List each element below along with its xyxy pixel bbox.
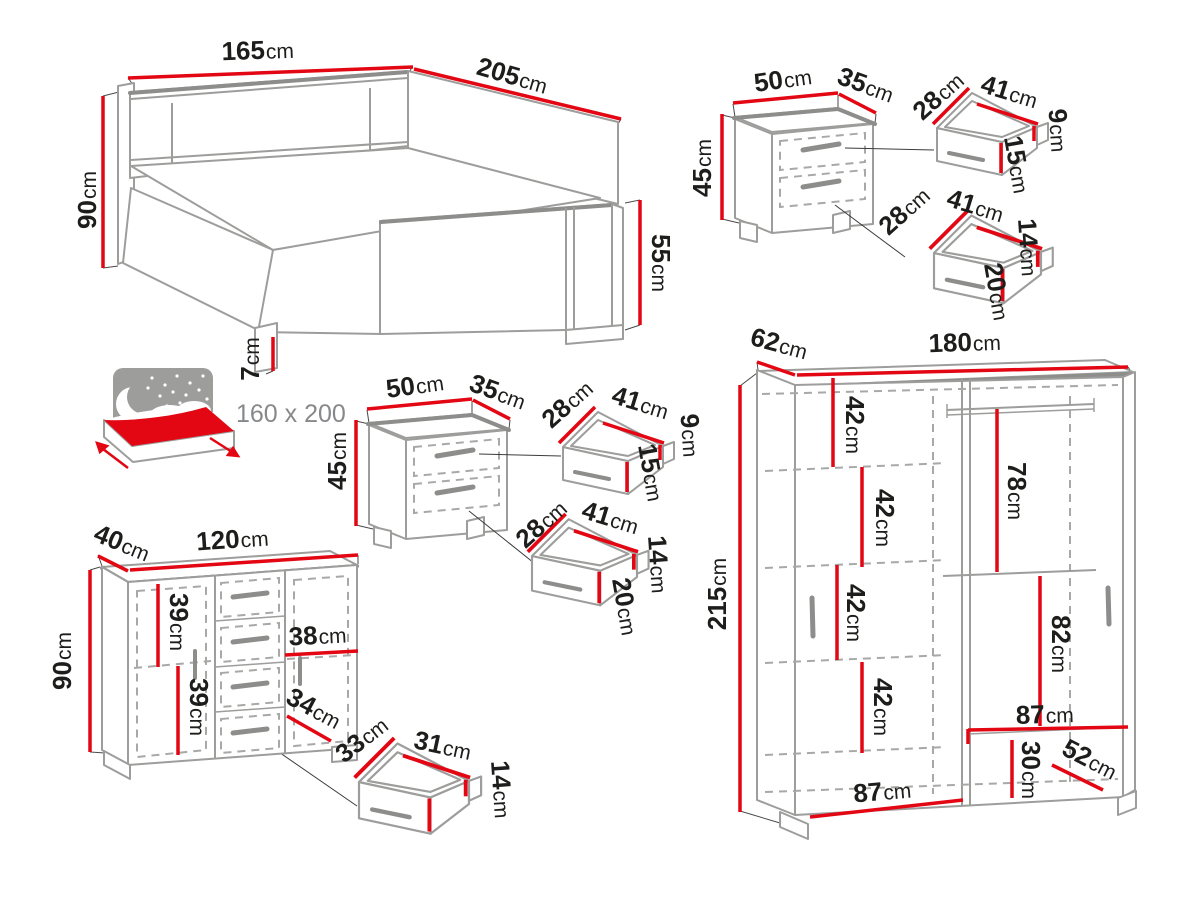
dresser-width-label: 120cm <box>195 522 269 557</box>
nightstand-left-width-label: 50cm <box>384 366 446 404</box>
nightstand-right-depth-label: 35cm <box>834 61 899 109</box>
nightstand-right-top-drawer-side-height-label: 9cm <box>1042 108 1075 153</box>
dresser-height-label: 90cm <box>47 632 77 690</box>
nightstand-right-height-label: 45cm <box>687 139 717 197</box>
bed-leg-height-label: 7cm <box>235 337 265 380</box>
dresser-drawing <box>90 551 358 779</box>
bed-headboard-height-label: 90cm <box>72 171 102 229</box>
nightstand-left-depth-label: 35cm <box>466 368 531 416</box>
wardrobe-depth-label: 62cm <box>747 321 811 365</box>
nightstand-left-bottom-drawer-side-height-label: 14cm <box>642 534 676 594</box>
furniture-dimensions-page: 165cm 205cm 90cm 55cm 7cm 160 x 200 50cm… <box>0 0 1200 899</box>
nightstand-right-bottom-drawer-depth-label: 28cm <box>872 180 935 241</box>
dresser-drawer-front-height-label: 14cm <box>485 759 519 819</box>
mattress-size-label: 160 x 200 <box>236 400 346 428</box>
bed-width-label: 165cm <box>221 34 294 67</box>
nightstand-left-top-drawer-side-height-label: 9cm <box>674 413 707 458</box>
nightstand-left-top-drawer-width-label: 41cm <box>609 380 673 426</box>
furniture-dimensions-diagram: 165cm 205cm 90cm 55cm 7cm 160 x 200 50cm… <box>0 0 1200 899</box>
wardrobe-height-label: 215cm <box>702 558 732 630</box>
bed-drawing <box>103 67 640 374</box>
nightstand-left-bottom-drawer-front-height-label: 20cm <box>606 575 646 637</box>
nightstand-right-drawing <box>722 93 876 242</box>
wardrobe-width-label: 180cm <box>928 326 1001 359</box>
mattress-icon <box>97 368 238 468</box>
nightstand-right-width-label: 50cm <box>752 60 814 98</box>
nightstand-left-height-label: 45cm <box>322 432 352 490</box>
bed-footboard-height-label: 55cm <box>646 234 676 292</box>
